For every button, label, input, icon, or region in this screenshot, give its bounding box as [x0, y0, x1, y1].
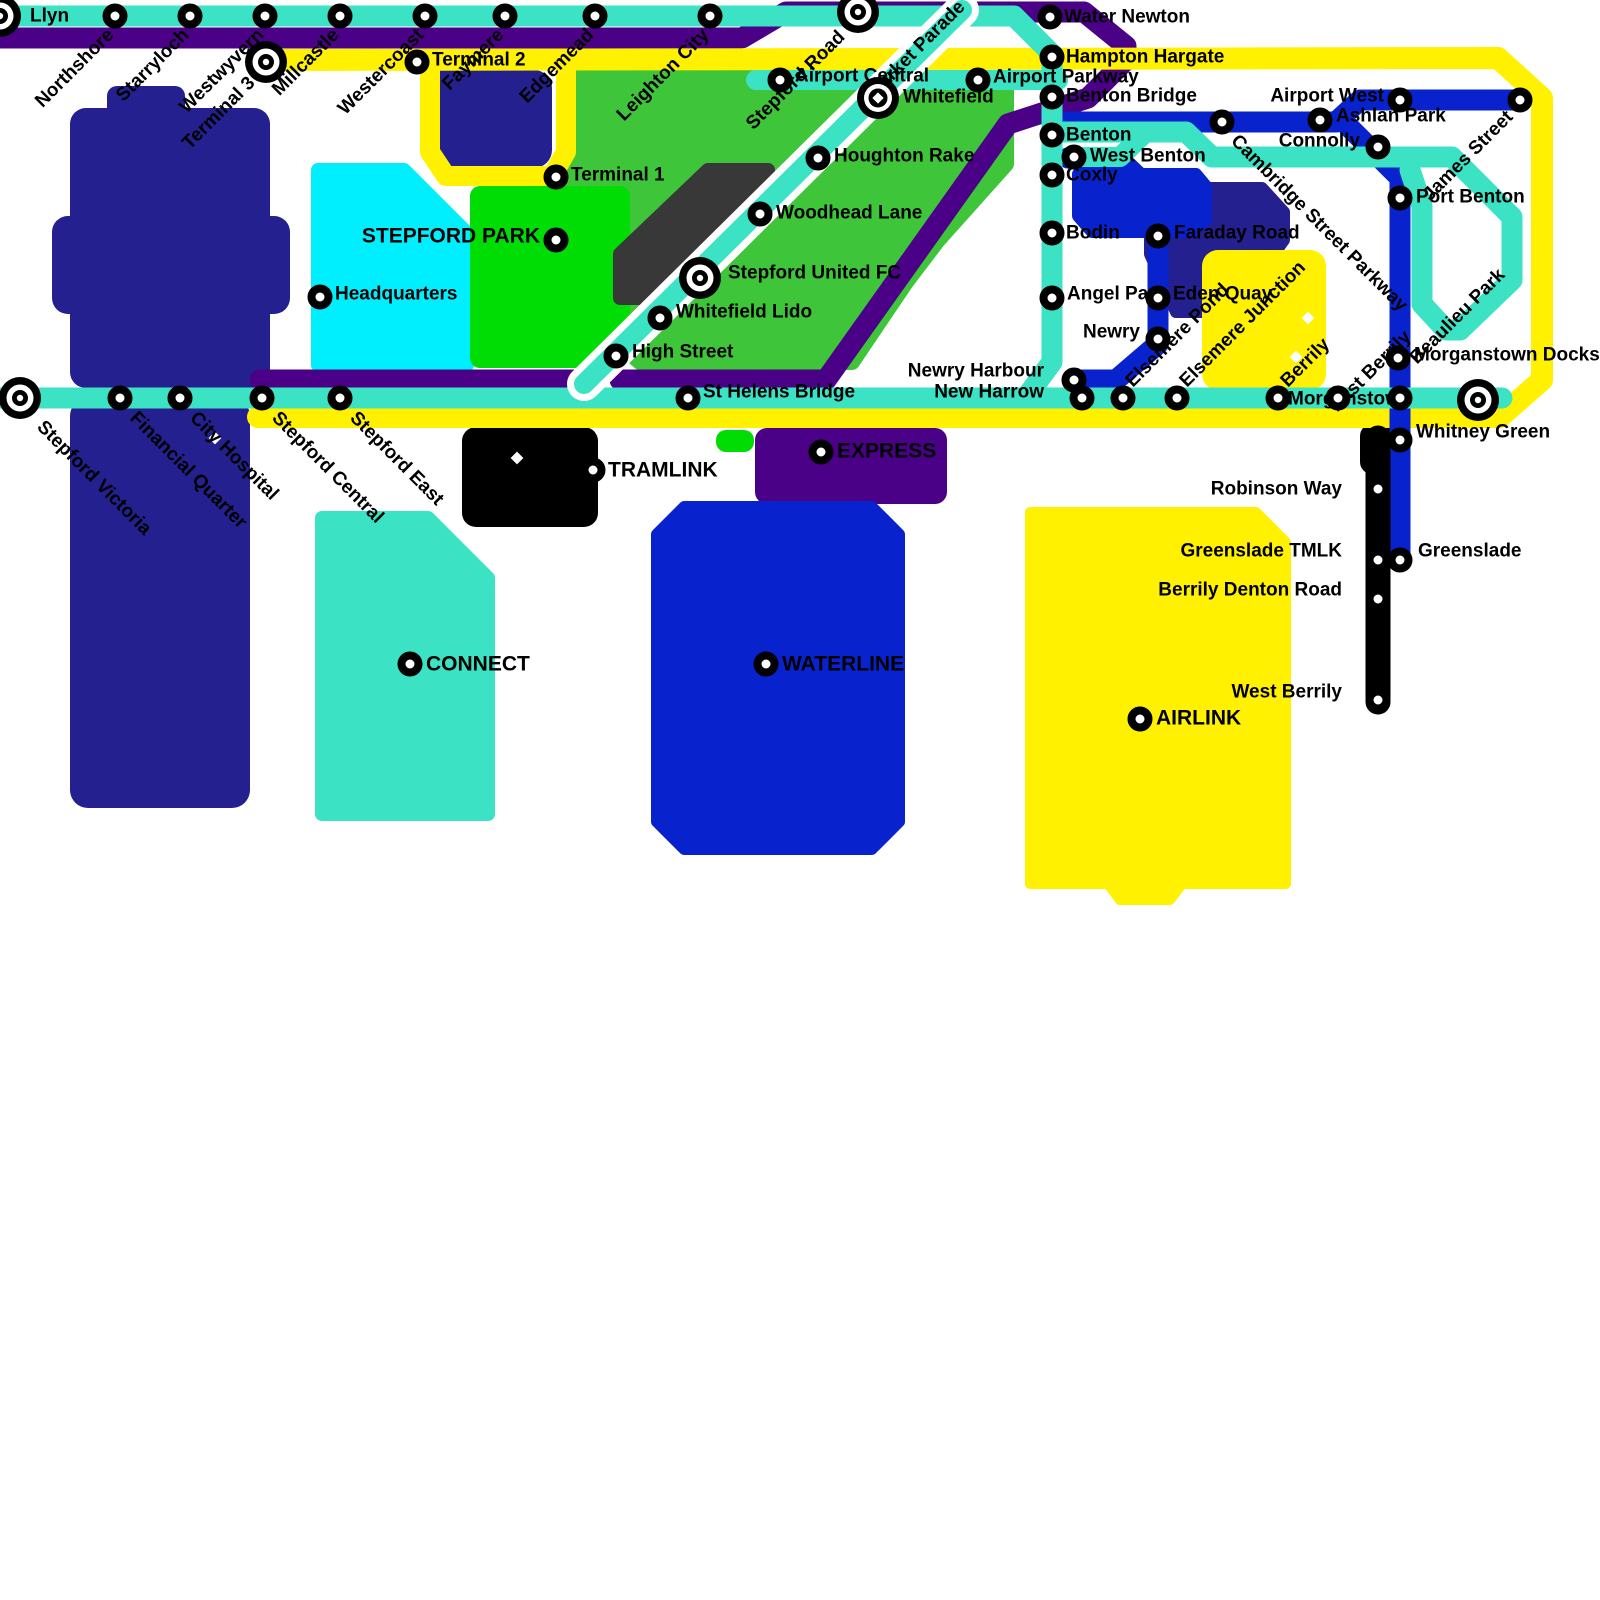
label-greenslade-tmlk: Greenslade TMLK: [1180, 541, 1342, 562]
label-water-newton: Water Newton: [1064, 7, 1190, 28]
label-airport-central: Airport Central: [795, 66, 929, 87]
station-faraday-road: [1150, 228, 1167, 245]
station-port-benton: [1392, 190, 1409, 207]
station-stepford-victoria-dot: [17, 395, 23, 401]
station-morganstown-interchange-dot: [1475, 397, 1481, 403]
station-whitney-green: [1392, 432, 1409, 449]
station-millcastle: [332, 8, 349, 25]
station-woodhead-lane: [752, 206, 769, 223]
label-newry-harbour: Newry Harbour: [908, 361, 1045, 382]
station-financial-quarter: [112, 390, 129, 407]
label-whitefield-lido: Whitefield Lido: [676, 302, 812, 323]
station-whitefield-lido: [652, 310, 669, 327]
station-bodin: [1044, 225, 1061, 242]
station-express-legend: [813, 444, 830, 461]
label-robinson-way: Robinson Way: [1211, 479, 1343, 500]
label-houghton-rake: Houghton Rake: [834, 146, 974, 167]
station-ashlan-park: [1312, 112, 1329, 129]
station-coxly: [1044, 167, 1061, 184]
label-express-legend: EXPRESS: [837, 440, 936, 463]
station-stepford-central: [254, 390, 271, 407]
label-woodhead-lane: Woodhead Lane: [776, 203, 922, 224]
station-high-street: [608, 348, 625, 365]
station-greenslade-tmlk: [1370, 552, 1387, 569]
station-airlink-legend: [1132, 711, 1149, 728]
station-stepford-road-dot: [855, 9, 861, 15]
label-terminal-2: Terminal 2: [432, 50, 526, 71]
station-berrily: [1270, 390, 1287, 407]
station-terminal-3-dot: [263, 59, 269, 65]
station-connect-legend: [402, 656, 419, 673]
label-hampton-hargate: Hampton Hargate: [1066, 47, 1224, 68]
station-waterline-legend: [758, 656, 775, 673]
station-elsemere-junction: [1169, 390, 1186, 407]
station-starryloch: [182, 8, 199, 25]
label-benton: Benton: [1066, 125, 1131, 146]
label-tramlink-legend: TRAMLINK: [608, 459, 718, 482]
station-headquarters: [312, 289, 329, 306]
transit-map-page: LlynNorthshoreStarrylochWestwyvernMillca…: [0, 0, 1600, 1600]
station-airport-parkway: [970, 72, 987, 89]
station-airport-west: [1392, 92, 1409, 109]
label-greenslade: Greenslade: [1418, 541, 1522, 562]
station-edgemead: [587, 8, 604, 25]
label-high-street: High Street: [632, 342, 734, 363]
station-greenslade: [1392, 552, 1409, 569]
station-eden-quay: [1150, 290, 1167, 307]
label-faraday-road: Faraday Road: [1174, 223, 1300, 244]
station-northshore: [107, 8, 124, 25]
station-tramlink-legend: [585, 462, 602, 479]
station-west-benton: [1066, 149, 1083, 166]
label-west-benton: West Benton: [1090, 146, 1206, 167]
region-navy-west-bulge: [52, 216, 290, 314]
station-houghton-rake: [810, 150, 827, 167]
label-terminal-1: Terminal 1: [571, 165, 665, 186]
station-water-newton: [1042, 9, 1059, 26]
station-angel-pass: [1044, 290, 1061, 307]
station-st-helens-bridge: [680, 390, 697, 407]
label-st-helens-bridge: St Helens Bridge: [703, 382, 855, 403]
label-airport-parkway: Airport Parkway: [993, 67, 1139, 88]
region-green-nub: [716, 430, 754, 452]
label-connect-legend: CONNECT: [426, 653, 530, 676]
station-stepford-east: [332, 390, 349, 407]
label-connolly: Connolly: [1279, 131, 1361, 152]
label-bodin: Bodin: [1066, 223, 1120, 244]
station-benton-bridge: [1044, 89, 1061, 106]
label-stepford-park: STEPFORD PARK: [362, 225, 540, 248]
label-airlink-legend: AIRLINK: [1156, 707, 1241, 730]
station-leighton-city: [702, 8, 719, 25]
station-city-hospital: [172, 390, 189, 407]
station-morganstown-blue: [1392, 390, 1409, 407]
station-newry: [1150, 331, 1167, 348]
station-terminal-2: [409, 54, 426, 71]
station-connolly: [1370, 139, 1387, 156]
label-newry: Newry: [1083, 322, 1140, 343]
station-elsemere-pond: [1115, 390, 1132, 407]
label-airport-west: Airport West: [1270, 86, 1384, 107]
station-james-street: [1512, 92, 1529, 109]
region-waterline-box: [656, 506, 900, 850]
station-terminal-1: [548, 169, 565, 186]
label-morganstown-docks: Morganstown Docks: [1414, 345, 1600, 366]
station-cambridge-street-parkway: [1214, 114, 1231, 131]
region-tramlink-box: [462, 427, 598, 527]
label-waterline-legend: WATERLINE: [782, 653, 904, 676]
station-berrily-denton-road: [1370, 591, 1387, 608]
station-westercoast: [417, 8, 434, 25]
label-stepford-united-fc: Stepford United FC: [728, 263, 901, 284]
station-stepford-united-fc-dot: [697, 275, 703, 281]
station-benton: [1044, 127, 1061, 144]
label-whitney-green: Whitney Green: [1416, 422, 1550, 443]
station-morganstown-docks: [1390, 350, 1407, 367]
station-new-harrow: [1074, 390, 1091, 407]
station-stepford-park: [548, 232, 565, 249]
label-llyn: Llyn: [30, 6, 69, 27]
label-benton-bridge: Benton Bridge: [1066, 86, 1197, 107]
station-airport-central: [772, 72, 789, 89]
label-berrily-denton-road: Berrily Denton Road: [1158, 580, 1342, 601]
station-hampton-hargate: [1044, 49, 1061, 66]
station-robinson-way: [1370, 481, 1387, 498]
label-port-benton: Port Benton: [1416, 187, 1525, 208]
station-westwyvern: [257, 8, 274, 25]
label-headquarters: Headquarters: [335, 284, 458, 305]
station-morganstown: [1330, 390, 1347, 407]
label-new-harrow: New Harrow: [934, 382, 1044, 403]
label-west-berrily: West Berrily: [1231, 682, 1342, 703]
region-cyan-headquarters-box: [318, 170, 467, 365]
station-faymere: [497, 8, 514, 25]
station-west-berrily: [1370, 692, 1387, 709]
transit-map: LlynNorthshoreStarrylochWestwyvernMillca…: [0, 0, 1600, 1600]
